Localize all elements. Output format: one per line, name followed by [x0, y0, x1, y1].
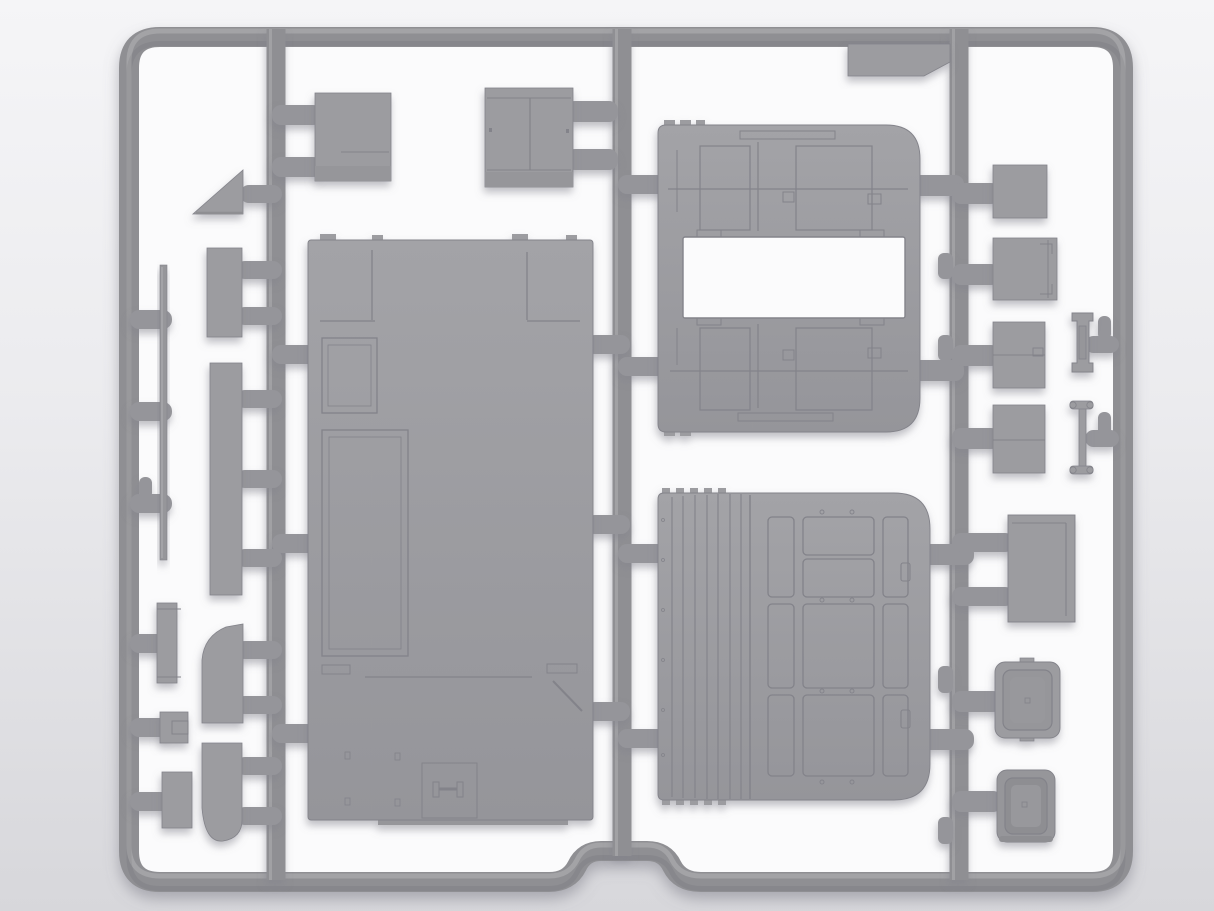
part-rect-plate-small: [207, 248, 242, 337]
part-grab-handle-geom: [1087, 467, 1093, 473]
gate-stub: [952, 791, 1002, 812]
part-door-panel-geom: [1008, 515, 1075, 622]
gate-stub: [952, 587, 1014, 606]
part-block-notched: [160, 712, 188, 743]
part-thin-rod: [160, 265, 167, 560]
screenshot-root: [0, 0, 1214, 911]
part-square-plate-b: [485, 88, 573, 187]
part-floor-panel: [308, 234, 593, 825]
part-floor-panel-geom: [308, 240, 593, 820]
gate-stub: [236, 390, 282, 408]
part-tray-a-geom: [1010, 677, 1045, 723]
gate-stub: [272, 157, 322, 177]
part-tray-a: [995, 658, 1060, 741]
part-tray-b: [997, 770, 1055, 842]
part-strip-long-geom: [210, 363, 242, 595]
part-box-plate-4: [993, 405, 1045, 473]
gate-stub: [236, 261, 282, 279]
gate-stub: [566, 101, 618, 122]
gate-stub: [272, 105, 322, 125]
runner-bump: [938, 253, 953, 279]
sprue-render: [0, 0, 1214, 911]
part-door-panel: [1008, 515, 1075, 622]
part-wedge-b-geom: [202, 743, 242, 841]
part-square-plate-b-geom: [566, 129, 569, 133]
part-rect-plate-tiny: [162, 772, 192, 828]
part-thin-rod-geom: [160, 265, 167, 560]
part-wedge-b: [202, 743, 242, 841]
gate-stub: [952, 533, 1014, 552]
gate-stub: [236, 470, 282, 488]
gate-stub: [236, 549, 282, 567]
runner-bump: [938, 335, 953, 361]
part-grab-handle-geom: [1087, 402, 1093, 408]
part-box-plate-2: [993, 238, 1057, 300]
part-box-plate-1: [993, 165, 1047, 218]
part-box-plate-4-geom: [993, 405, 1045, 473]
part-grab-handle-geom: [1070, 467, 1076, 473]
part-grab-handle-geom: [1070, 402, 1076, 408]
gate-stub: [236, 757, 282, 775]
part-sill-strip: [157, 603, 181, 683]
part-sill-strip-geom: [157, 603, 177, 683]
runner-bump: [938, 817, 953, 844]
part-square-plate-a-geom: [315, 166, 391, 181]
part-strip-long: [210, 363, 242, 595]
gate-stub: [566, 149, 618, 170]
part-frame-bracket-geom: [1079, 326, 1086, 359]
part-rect-plate-small-geom: [207, 248, 242, 337]
part-tray-b-geom: [999, 836, 1053, 842]
gate-stub: [952, 691, 1002, 712]
part-grab-handle-geom: [1079, 408, 1086, 468]
runner-bump: [1098, 316, 1111, 340]
part-body-panel-upper: [658, 120, 920, 436]
part-box-plate-1-geom: [993, 165, 1047, 218]
runner-bump: [1098, 412, 1111, 436]
part-square-plate-a: [315, 93, 391, 181]
part-box-plate-3: [993, 322, 1045, 388]
part-square-plate-b-geom: [489, 128, 492, 132]
part-box-plate-2-geom: [993, 238, 1057, 300]
part-roof-panel-lower: [658, 488, 930, 805]
part-block-notched-geom: [160, 712, 188, 743]
part-body-panel-upper-geom: [683, 237, 905, 318]
runner-bump: [139, 477, 152, 499]
part-rect-plate-tiny-geom: [162, 772, 192, 828]
gate-stub: [236, 307, 282, 325]
part-tray-b-geom: [1011, 785, 1041, 827]
gate-stub: [236, 807, 282, 825]
runner-bump: [938, 666, 953, 693]
gate-stub: [240, 185, 282, 203]
part-square-plate-b-geom: [485, 172, 573, 187]
